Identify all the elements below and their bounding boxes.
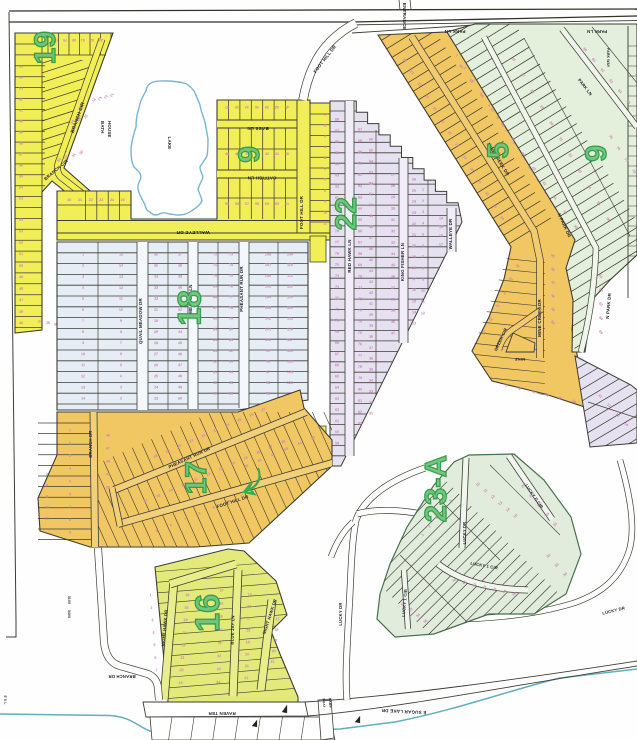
svg-text:26: 26 bbox=[412, 177, 416, 181]
svg-text:61: 61 bbox=[213, 370, 217, 374]
svg-text:118: 118 bbox=[287, 349, 293, 353]
svg-text:37: 37 bbox=[369, 346, 373, 350]
svg-text:7: 7 bbox=[324, 178, 326, 182]
svg-text:RAVEN TER: RAVEN TER bbox=[208, 711, 236, 716]
svg-text:58: 58 bbox=[19, 142, 23, 146]
svg-text:112: 112 bbox=[287, 284, 293, 288]
svg-text:49: 49 bbox=[106, 472, 110, 476]
svg-text:3100: 3100 bbox=[67, 596, 71, 604]
svg-text:68: 68 bbox=[213, 295, 217, 299]
svg-text:38: 38 bbox=[178, 263, 182, 267]
svg-text:119: 119 bbox=[287, 359, 293, 363]
svg-text:82: 82 bbox=[90, 38, 94, 42]
svg-text:62: 62 bbox=[213, 359, 217, 363]
svg-text:96: 96 bbox=[266, 381, 270, 385]
svg-text:46: 46 bbox=[369, 247, 373, 251]
svg-text:56: 56 bbox=[19, 163, 23, 167]
svg-text:38: 38 bbox=[391, 297, 395, 301]
svg-text:33: 33 bbox=[217, 667, 221, 671]
svg-text:13: 13 bbox=[412, 322, 416, 326]
svg-text:10: 10 bbox=[323, 210, 327, 214]
svg-text:RED HAWK LN: RED HAWK LN bbox=[347, 239, 352, 272]
svg-text:69: 69 bbox=[213, 285, 217, 289]
svg-text:45: 45 bbox=[285, 105, 289, 109]
svg-text:9: 9 bbox=[120, 319, 122, 323]
svg-text:76: 76 bbox=[335, 252, 339, 256]
svg-text:22: 22 bbox=[181, 643, 185, 647]
svg-text:105: 105 bbox=[265, 284, 271, 288]
svg-text:13: 13 bbox=[119, 275, 123, 279]
svg-text:75: 75 bbox=[358, 331, 362, 335]
svg-text:101: 101 bbox=[265, 327, 271, 331]
svg-text:60: 60 bbox=[335, 430, 339, 434]
svg-text:46: 46 bbox=[19, 310, 23, 314]
svg-text:16: 16 bbox=[412, 288, 416, 292]
svg-text:40: 40 bbox=[285, 152, 289, 156]
svg-text:63: 63 bbox=[213, 349, 217, 353]
svg-text:23: 23 bbox=[154, 396, 158, 400]
svg-text:53: 53 bbox=[19, 196, 23, 200]
svg-text:51: 51 bbox=[19, 252, 23, 256]
svg-text:76: 76 bbox=[229, 284, 233, 288]
svg-text:35: 35 bbox=[391, 263, 395, 267]
svg-text:80: 80 bbox=[229, 327, 233, 331]
svg-text:62: 62 bbox=[358, 184, 362, 188]
svg-text:10: 10 bbox=[45, 505, 49, 509]
svg-text:10: 10 bbox=[81, 352, 85, 356]
svg-text:1: 1 bbox=[149, 593, 151, 597]
svg-text:23: 23 bbox=[412, 211, 416, 215]
svg-text:59: 59 bbox=[213, 391, 217, 395]
svg-text:104: 104 bbox=[265, 295, 272, 299]
svg-text:32: 32 bbox=[217, 654, 221, 658]
svg-text:22: 22 bbox=[89, 198, 93, 202]
svg-text:45: 45 bbox=[369, 258, 373, 262]
svg-text:73: 73 bbox=[335, 285, 339, 289]
svg-text:35: 35 bbox=[154, 263, 158, 267]
svg-text:59: 59 bbox=[335, 441, 339, 445]
svg-text:81: 81 bbox=[81, 38, 85, 42]
svg-text:50: 50 bbox=[19, 264, 23, 268]
svg-text:98: 98 bbox=[266, 359, 270, 363]
svg-text:32: 32 bbox=[154, 297, 158, 301]
svg-text:42: 42 bbox=[369, 291, 373, 295]
svg-text:59: 59 bbox=[358, 150, 362, 154]
svg-text:2: 2 bbox=[82, 264, 84, 268]
svg-text:100: 100 bbox=[265, 338, 271, 342]
svg-text:47: 47 bbox=[369, 236, 373, 240]
svg-text:18: 18 bbox=[274, 628, 278, 632]
svg-text:36: 36 bbox=[255, 105, 259, 109]
svg-text:107: 107 bbox=[265, 263, 271, 267]
svg-text:6: 6 bbox=[69, 492, 71, 496]
svg-text:3: 3 bbox=[422, 210, 424, 214]
svg-text:40: 40 bbox=[391, 320, 395, 324]
svg-text:79: 79 bbox=[229, 316, 233, 320]
svg-text:1: 1 bbox=[82, 252, 84, 256]
svg-text:17: 17 bbox=[180, 461, 213, 494]
svg-text:78: 78 bbox=[229, 306, 233, 310]
svg-text:3: 3 bbox=[82, 275, 84, 279]
svg-text:BRANCH DR: BRANCH DR bbox=[88, 430, 93, 457]
svg-text:PHEASANT RUN DR: PHEASANT RUN DR bbox=[239, 266, 244, 312]
svg-text:19: 19 bbox=[273, 638, 277, 642]
svg-text:83: 83 bbox=[229, 359, 233, 363]
svg-text:80: 80 bbox=[358, 387, 362, 391]
svg-text:12: 12 bbox=[421, 311, 425, 315]
svg-text:83: 83 bbox=[99, 38, 103, 42]
svg-text:2: 2 bbox=[324, 123, 326, 127]
svg-text:18: 18 bbox=[172, 290, 208, 326]
svg-text:2: 2 bbox=[120, 396, 122, 400]
svg-text:WALLEYE DR: WALLEYE DR bbox=[448, 218, 453, 249]
svg-text:16: 16 bbox=[247, 605, 251, 609]
svg-text:55: 55 bbox=[369, 148, 373, 152]
svg-text:53: 53 bbox=[19, 229, 23, 233]
svg-text:41: 41 bbox=[275, 152, 279, 156]
svg-text:46: 46 bbox=[106, 433, 110, 437]
svg-text:57: 57 bbox=[19, 152, 23, 156]
svg-text:86: 86 bbox=[335, 140, 339, 144]
svg-text:BATH: BATH bbox=[100, 121, 105, 134]
svg-text:23: 23 bbox=[99, 198, 103, 202]
svg-text:85: 85 bbox=[335, 151, 339, 155]
svg-text:21: 21 bbox=[180, 656, 184, 660]
svg-text:7: 7 bbox=[120, 341, 122, 345]
svg-text:8: 8 bbox=[422, 266, 424, 270]
svg-text:71: 71 bbox=[335, 307, 339, 311]
svg-text:71: 71 bbox=[358, 286, 362, 290]
svg-text:17: 17 bbox=[275, 617, 279, 621]
svg-text:37: 37 bbox=[178, 252, 182, 256]
svg-text:6: 6 bbox=[422, 244, 424, 248]
svg-text:56: 56 bbox=[369, 137, 373, 141]
svg-text:35: 35 bbox=[369, 368, 373, 372]
svg-text:BASS LN: BASS LN bbox=[247, 126, 269, 131]
svg-text:3: 3 bbox=[324, 134, 326, 138]
svg-text:58: 58 bbox=[255, 202, 259, 206]
svg-text:LUCKY DR: LUCKY DR bbox=[462, 522, 467, 545]
svg-text:69: 69 bbox=[335, 330, 339, 334]
svg-text:6: 6 bbox=[324, 167, 326, 171]
svg-text:31: 31 bbox=[154, 308, 158, 312]
svg-text:111: 111 bbox=[287, 274, 293, 278]
svg-text:13: 13 bbox=[81, 385, 85, 389]
svg-text:1: 1 bbox=[324, 112, 326, 116]
svg-text:22: 22 bbox=[244, 676, 248, 680]
svg-text:6: 6 bbox=[154, 656, 156, 660]
svg-text:9: 9 bbox=[580, 145, 613, 162]
svg-text:68: 68 bbox=[335, 341, 339, 345]
svg-text:60: 60 bbox=[19, 119, 23, 123]
svg-text:82: 82 bbox=[358, 410, 362, 414]
svg-text:6: 6 bbox=[82, 308, 84, 312]
svg-text:BRANCH DR: BRANCH DR bbox=[108, 674, 135, 679]
svg-text:1: 1 bbox=[422, 188, 424, 192]
svg-text:5: 5 bbox=[69, 479, 71, 483]
svg-text:69: 69 bbox=[358, 263, 362, 267]
svg-text:3400: 3400 bbox=[67, 610, 71, 618]
svg-text:75: 75 bbox=[229, 274, 233, 278]
svg-text:22: 22 bbox=[330, 197, 363, 230]
svg-text:21: 21 bbox=[245, 664, 249, 668]
svg-text:66: 66 bbox=[213, 316, 217, 320]
svg-text:87: 87 bbox=[335, 129, 339, 133]
svg-text:16: 16 bbox=[189, 594, 227, 632]
svg-text:21: 21 bbox=[412, 233, 416, 237]
svg-text:76: 76 bbox=[358, 342, 362, 346]
svg-text:59: 59 bbox=[265, 202, 269, 206]
svg-text:27: 27 bbox=[391, 173, 395, 177]
svg-text:78: 78 bbox=[358, 365, 362, 369]
svg-text:61: 61 bbox=[19, 109, 23, 113]
svg-text:25: 25 bbox=[412, 188, 416, 192]
svg-text:WALLEYE DR: WALLEYE DR bbox=[176, 229, 210, 235]
svg-text:60: 60 bbox=[213, 381, 217, 385]
svg-text:36: 36 bbox=[154, 253, 158, 257]
svg-text:70: 70 bbox=[213, 274, 217, 278]
svg-text:48: 48 bbox=[369, 225, 373, 229]
svg-text:3: 3 bbox=[69, 454, 71, 458]
svg-text:52: 52 bbox=[369, 181, 373, 185]
svg-text:72: 72 bbox=[358, 297, 362, 301]
svg-text:46: 46 bbox=[225, 152, 229, 156]
svg-text:39: 39 bbox=[178, 275, 182, 279]
svg-text:28: 28 bbox=[154, 341, 158, 345]
svg-text:11: 11 bbox=[421, 300, 425, 304]
svg-text:9: 9 bbox=[422, 278, 424, 282]
svg-text:67: 67 bbox=[213, 306, 217, 310]
svg-text:26: 26 bbox=[154, 363, 158, 367]
svg-text:5: 5 bbox=[324, 156, 326, 160]
svg-text:37: 37 bbox=[391, 286, 395, 290]
svg-text:20: 20 bbox=[412, 244, 416, 248]
svg-text:48: 48 bbox=[178, 374, 182, 378]
svg-text:81: 81 bbox=[358, 399, 362, 403]
svg-text:86: 86 bbox=[229, 391, 233, 395]
svg-text:36: 36 bbox=[369, 357, 373, 361]
svg-text:19: 19 bbox=[29, 31, 62, 64]
svg-text:PARK LN: PARK LN bbox=[587, 29, 607, 34]
svg-text:61: 61 bbox=[358, 173, 362, 177]
svg-text:7: 7 bbox=[422, 255, 424, 259]
svg-text:109: 109 bbox=[287, 252, 293, 256]
svg-text:45: 45 bbox=[19, 321, 23, 325]
svg-text:39: 39 bbox=[369, 324, 373, 328]
svg-text:103: 103 bbox=[265, 306, 271, 310]
svg-text:7: 7 bbox=[69, 505, 71, 509]
svg-text:102: 102 bbox=[265, 316, 271, 320]
svg-text:63: 63 bbox=[335, 397, 339, 401]
svg-text:49: 49 bbox=[178, 385, 182, 389]
svg-text:95: 95 bbox=[266, 392, 270, 396]
svg-text:E S L: E S L bbox=[3, 696, 7, 705]
svg-text:120: 120 bbox=[287, 370, 293, 374]
svg-text:45: 45 bbox=[178, 341, 182, 345]
svg-text:8: 8 bbox=[69, 518, 71, 522]
svg-text:9: 9 bbox=[233, 146, 266, 163]
svg-text:47: 47 bbox=[178, 363, 182, 367]
svg-text:58: 58 bbox=[358, 139, 362, 143]
svg-text:39: 39 bbox=[391, 309, 395, 313]
svg-text:20: 20 bbox=[179, 668, 183, 672]
svg-text:ENTRANCE: ENTRANCE bbox=[402, 3, 407, 30]
svg-text:3: 3 bbox=[120, 385, 122, 389]
svg-text:41: 41 bbox=[391, 331, 395, 335]
svg-text:7: 7 bbox=[82, 319, 84, 323]
svg-text:15: 15 bbox=[248, 593, 252, 597]
svg-text:71: 71 bbox=[213, 263, 217, 267]
svg-text:82: 82 bbox=[335, 185, 339, 189]
svg-text:5: 5 bbox=[120, 363, 122, 367]
svg-text:17: 17 bbox=[439, 242, 443, 246]
svg-text:21: 21 bbox=[270, 660, 274, 664]
svg-text:5: 5 bbox=[482, 142, 515, 159]
svg-text:32: 32 bbox=[391, 229, 395, 233]
svg-text:8: 8 bbox=[46, 483, 48, 487]
svg-text:46: 46 bbox=[178, 352, 182, 356]
svg-text:10: 10 bbox=[421, 289, 425, 293]
svg-text:25: 25 bbox=[120, 198, 124, 202]
svg-text:19: 19 bbox=[178, 681, 182, 685]
svg-text:60: 60 bbox=[358, 161, 362, 165]
svg-text:80: 80 bbox=[72, 38, 76, 42]
svg-text:27: 27 bbox=[225, 105, 229, 109]
svg-text:82: 82 bbox=[229, 349, 233, 353]
svg-text:16: 16 bbox=[439, 234, 443, 238]
svg-text:19: 19 bbox=[246, 640, 250, 644]
svg-text:11: 11 bbox=[119, 297, 123, 301]
svg-text:12: 12 bbox=[119, 286, 123, 290]
svg-text:18: 18 bbox=[246, 629, 250, 633]
svg-text:59: 59 bbox=[19, 130, 23, 134]
svg-text:72: 72 bbox=[213, 252, 217, 256]
svg-text:LUCKY DR: LUCKY DR bbox=[338, 602, 343, 625]
svg-text:97: 97 bbox=[266, 370, 270, 374]
svg-text:49: 49 bbox=[19, 275, 23, 279]
svg-text:35: 35 bbox=[46, 321, 50, 325]
svg-text:73: 73 bbox=[229, 252, 233, 256]
svg-text:116: 116 bbox=[287, 327, 293, 331]
svg-text:5: 5 bbox=[153, 643, 155, 647]
svg-text:40: 40 bbox=[369, 313, 373, 317]
svg-text:50: 50 bbox=[106, 486, 110, 490]
svg-text:33: 33 bbox=[369, 389, 373, 393]
svg-text:BOAT: BOAT bbox=[322, 698, 326, 707]
svg-text:3: 3 bbox=[151, 618, 153, 622]
svg-text:25: 25 bbox=[154, 374, 158, 378]
svg-text:5: 5 bbox=[422, 233, 424, 237]
svg-text:39: 39 bbox=[265, 105, 269, 109]
svg-text:117: 117 bbox=[287, 338, 293, 342]
svg-text:65: 65 bbox=[213, 327, 217, 331]
svg-text:33: 33 bbox=[154, 286, 158, 290]
svg-text:65: 65 bbox=[19, 64, 23, 68]
svg-text:110: 110 bbox=[287, 263, 293, 267]
svg-text:MINE CREEK DR: MINE CREEK DR bbox=[537, 299, 542, 337]
svg-text:42: 42 bbox=[275, 105, 279, 109]
svg-text:67: 67 bbox=[358, 240, 362, 244]
svg-text:47: 47 bbox=[106, 447, 110, 451]
svg-text:20: 20 bbox=[245, 652, 249, 656]
svg-text:81: 81 bbox=[229, 338, 233, 342]
svg-text:106: 106 bbox=[265, 274, 271, 278]
svg-text:113: 113 bbox=[287, 295, 293, 299]
svg-text:11: 11 bbox=[323, 221, 327, 225]
svg-text:15: 15 bbox=[412, 299, 416, 303]
svg-text:77: 77 bbox=[229, 295, 233, 299]
svg-text:55: 55 bbox=[19, 174, 23, 178]
svg-text:15: 15 bbox=[439, 225, 443, 229]
svg-text:2: 2 bbox=[422, 199, 424, 203]
svg-text:50: 50 bbox=[178, 396, 182, 400]
svg-text:32: 32 bbox=[369, 401, 373, 405]
svg-text:50: 50 bbox=[369, 203, 373, 207]
svg-text:53: 53 bbox=[369, 170, 373, 174]
svg-text:30: 30 bbox=[235, 105, 239, 109]
svg-text:60: 60 bbox=[275, 202, 279, 206]
svg-text:83: 83 bbox=[335, 173, 339, 177]
svg-text:5: 5 bbox=[82, 297, 84, 301]
svg-text:PARK LN: PARK LN bbox=[444, 29, 465, 34]
svg-text:57: 57 bbox=[358, 127, 362, 131]
svg-text:9: 9 bbox=[82, 341, 84, 345]
svg-text:7: 7 bbox=[46, 472, 48, 476]
svg-text:70: 70 bbox=[335, 318, 339, 322]
svg-text:30: 30 bbox=[154, 319, 158, 323]
svg-text:29: 29 bbox=[154, 330, 158, 334]
svg-text:47: 47 bbox=[19, 298, 23, 302]
svg-text:99: 99 bbox=[266, 349, 270, 353]
svg-text:2: 2 bbox=[69, 441, 71, 445]
svg-text:48: 48 bbox=[19, 287, 23, 291]
svg-text:20: 20 bbox=[67, 198, 71, 202]
svg-text:62: 62 bbox=[19, 97, 23, 101]
svg-text:10: 10 bbox=[119, 308, 123, 312]
svg-text:11: 11 bbox=[45, 516, 49, 520]
svg-text:HOUSE: HOUSE bbox=[107, 121, 112, 138]
svg-text:27: 27 bbox=[220, 589, 224, 593]
svg-text:61: 61 bbox=[335, 419, 339, 423]
svg-text:79: 79 bbox=[358, 376, 362, 380]
svg-text:73: 73 bbox=[358, 308, 362, 312]
svg-text:70: 70 bbox=[358, 274, 362, 278]
svg-text:61: 61 bbox=[285, 202, 289, 206]
svg-text:LAKE: LAKE bbox=[167, 137, 172, 150]
svg-text:66: 66 bbox=[335, 363, 339, 367]
svg-text:115: 115 bbox=[287, 316, 293, 320]
svg-text:8: 8 bbox=[324, 189, 326, 193]
svg-text:65: 65 bbox=[335, 374, 339, 378]
svg-text:31: 31 bbox=[218, 641, 222, 645]
svg-text:BLUE JAY LN: BLUE JAY LN bbox=[229, 615, 235, 644]
svg-text:19: 19 bbox=[412, 255, 416, 259]
svg-text:33: 33 bbox=[245, 105, 249, 109]
svg-text:40: 40 bbox=[178, 286, 182, 290]
svg-text:51: 51 bbox=[369, 192, 373, 196]
svg-text:18: 18 bbox=[412, 266, 416, 270]
svg-text:57: 57 bbox=[245, 202, 249, 206]
svg-text:6: 6 bbox=[120, 352, 122, 356]
svg-text:9: 9 bbox=[46, 495, 48, 499]
svg-text:9: 9 bbox=[69, 531, 71, 535]
svg-text:77: 77 bbox=[335, 240, 339, 244]
svg-text:31: 31 bbox=[391, 218, 395, 222]
svg-text:23-A: 23-A bbox=[418, 455, 453, 522]
svg-text:15: 15 bbox=[119, 252, 123, 256]
svg-text:33: 33 bbox=[391, 241, 395, 245]
svg-text:8: 8 bbox=[82, 330, 84, 334]
